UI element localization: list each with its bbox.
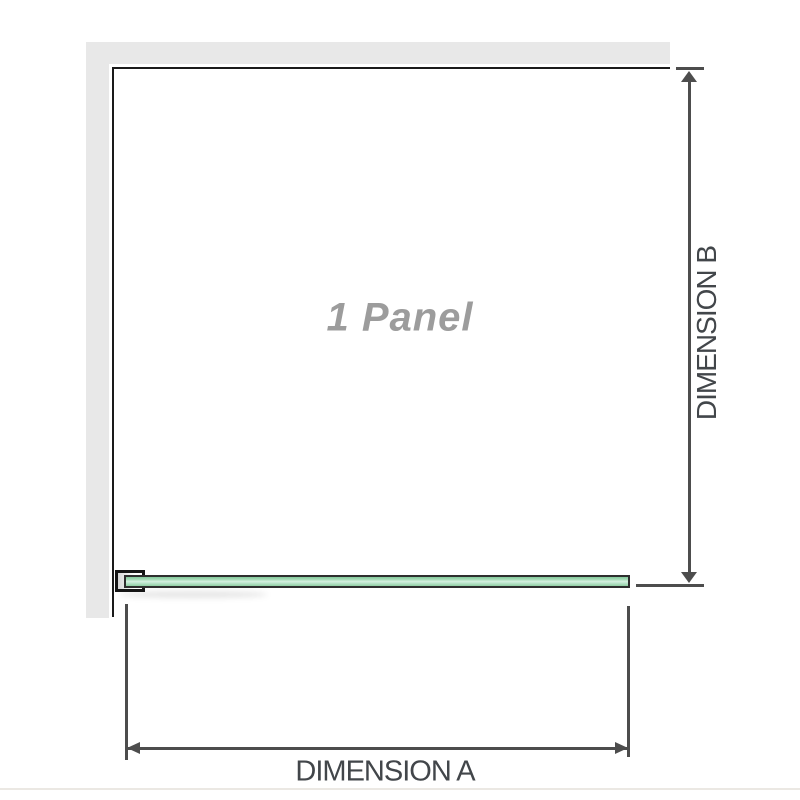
panel-top-edge — [112, 67, 670, 69]
glass-panel-shadow — [118, 591, 268, 598]
arrow-up-icon — [681, 71, 697, 82]
arrow-right-icon — [615, 742, 628, 754]
shower-panel-diagram: 1 Panel DIMENSION B DIMENSION A — [0, 0, 800, 800]
dimension-a-left-extension — [125, 604, 128, 760]
dimension-b-label: DIMENSION B — [691, 246, 723, 420]
dimension-a-right-extension — [627, 606, 630, 757]
dimension-a-arrow-line — [127, 747, 628, 750]
wall-top — [86, 42, 670, 64]
panel-count-label: 1 Panel — [326, 296, 473, 341]
page-bottom-rule — [0, 788, 800, 790]
arrow-left-icon — [127, 742, 140, 754]
arrow-down-icon — [681, 572, 697, 583]
dimension-b-top-tick — [676, 67, 704, 70]
dimension-a-label: DIMENSION A — [295, 756, 474, 789]
glass-panel-top-view — [124, 575, 630, 588]
dimension-b-bottom-tick — [636, 584, 704, 587]
panel-left-edge — [112, 67, 114, 617]
wall-left — [86, 42, 109, 618]
